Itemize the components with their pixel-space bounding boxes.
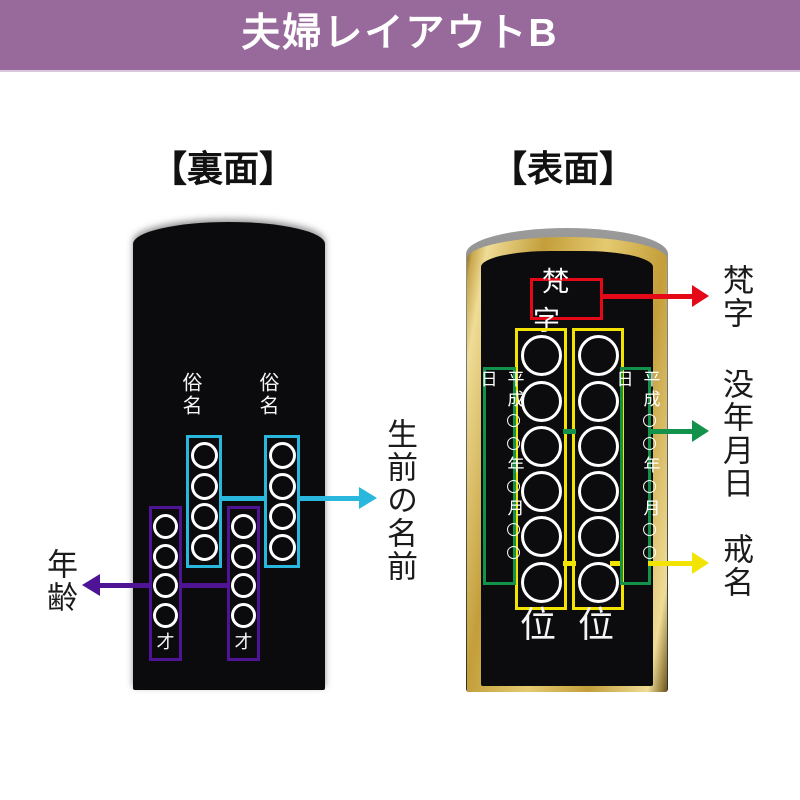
age-circle [153, 544, 178, 569]
bonji-arrowhead-icon [692, 285, 709, 307]
age-circle [153, 514, 178, 539]
name-circle [191, 503, 218, 530]
name-circle [191, 473, 218, 500]
bonji-note: 梵字 [719, 264, 752, 330]
kaimyo-arrow-stub [610, 561, 620, 566]
age-suffix-right: 才 [235, 633, 253, 653]
age-arrowhead-icon [82, 574, 100, 596]
kaimyo-circle [521, 471, 562, 512]
death-date-arrowhead-icon [692, 420, 709, 442]
name-box-right [264, 435, 300, 568]
front-side-header: 【表面】 [453, 140, 673, 192]
kaimyo-circle [521, 335, 562, 376]
bonji-box: 梵字 [530, 278, 603, 320]
page-title: 夫婦レイアウトB [0, 0, 800, 68]
death-date-box-left: 平成○○年○月○○日 [483, 367, 516, 585]
age-circle [231, 603, 256, 628]
death-date-note: 没年月日 [719, 368, 752, 500]
age-circle [153, 573, 178, 598]
rank-character-left: 位 [520, 607, 556, 645]
age-circle [231, 544, 256, 569]
rank-character-right: 位 [578, 607, 614, 645]
age-suffix-left: 才 [157, 633, 175, 653]
death-date-box-right: 平成○○年○月○○日 [620, 367, 651, 585]
name-circle [269, 534, 296, 561]
name-circle [191, 442, 218, 469]
age-arrow-line [99, 583, 151, 588]
bonji-arrow-line [601, 294, 693, 299]
rank-row: 位 位 [481, 607, 653, 645]
death-date-arrow-line [648, 429, 693, 434]
kaimyo-arrow-line [648, 561, 693, 566]
name-circle [191, 534, 218, 561]
lifetime-name-note: 生前の名前 [383, 418, 416, 583]
age-box-right: 才 [227, 506, 260, 661]
kaimyo-circle [521, 381, 562, 422]
death-date-arrow-connector [563, 429, 576, 434]
common-name-label-left: 俗名 [180, 372, 202, 418]
name-circle [269, 473, 296, 500]
bonji-placeholder: 梵字 [533, 260, 600, 338]
age-box-left: 才 [149, 506, 182, 661]
tablet-front-panel: 梵字 平成○○年○月○○日 平成○○年○月○○日 位 位 [481, 251, 653, 686]
age-circle [231, 514, 256, 539]
age-circle [153, 603, 178, 628]
title-banner: 夫婦レイアウトB [0, 0, 800, 72]
lifetime-name-arrowhead-icon [359, 487, 377, 509]
name-box-left [186, 435, 222, 568]
back-tablet: 俗名 俗名 才 才 [133, 222, 325, 690]
back-side-header: 【裏面】 [113, 140, 333, 192]
age-arrow-connector [180, 583, 229, 588]
name-circle [269, 503, 296, 530]
name-circle [269, 442, 296, 469]
kaimyo-arrow-connector [563, 561, 576, 566]
lifetime-name-arrow-line [300, 496, 360, 501]
age-note: 年齢 [43, 548, 76, 614]
kaimyo-arrowhead-icon [692, 552, 709, 574]
kaimyo-circle [521, 562, 562, 603]
death-date-placeholder-right: 平成○○年○月○○日 [609, 370, 663, 582]
kaimyo-circle [521, 516, 562, 557]
death-date-placeholder-left: 平成○○年○月○○日 [473, 370, 527, 582]
kaimyo-circle [521, 426, 562, 467]
kaimyo-note: 戒名 [719, 533, 752, 599]
common-name-label-right: 俗名 [257, 372, 279, 418]
lifetime-name-arrow-connector [220, 496, 266, 501]
age-circle [231, 573, 256, 598]
